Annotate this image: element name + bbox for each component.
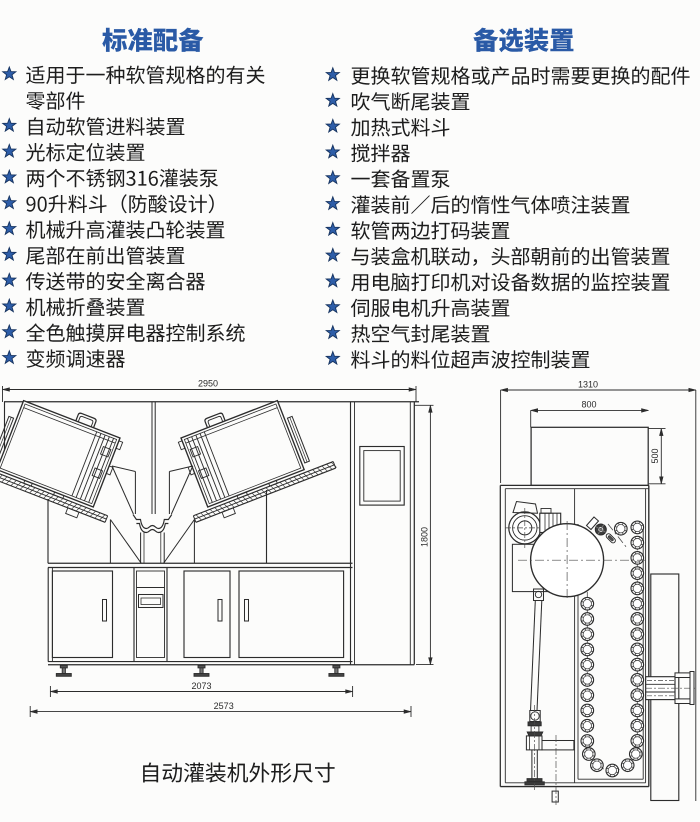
svg-text:1800: 1800 — [420, 527, 430, 547]
svg-text:800: 800 — [581, 400, 596, 410]
svg-text:500: 500 — [650, 448, 660, 463]
svg-text:2573: 2573 — [214, 701, 234, 711]
svg-text:2073: 2073 — [191, 681, 211, 691]
svg-text:2950: 2950 — [198, 379, 218, 389]
svg-text:1310: 1310 — [578, 379, 598, 389]
